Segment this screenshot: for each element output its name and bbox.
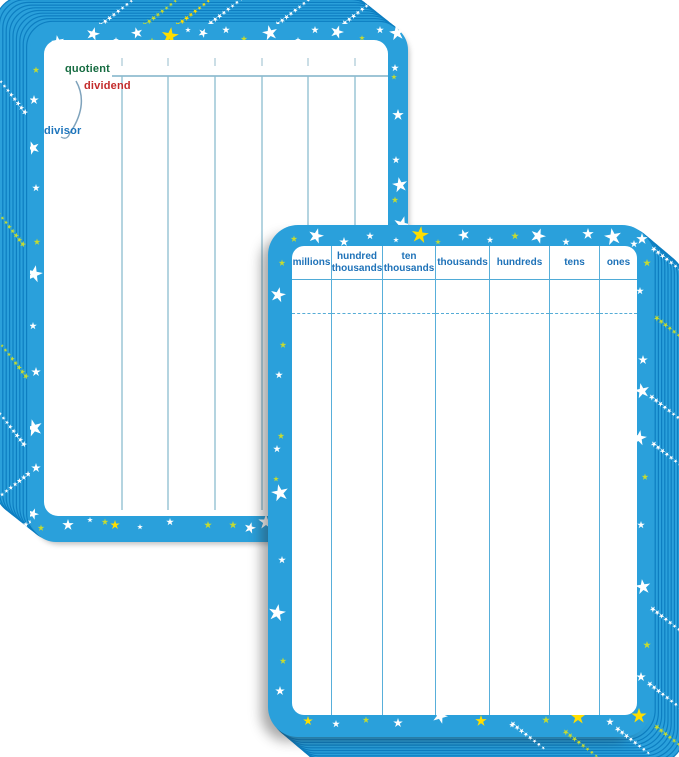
star-trail-icon: [614, 725, 652, 756]
star-trail-icon: [650, 245, 679, 276]
star-trail-icon: [649, 605, 679, 636]
chart-cards-product-image: quotient dividend divisor millionshundre…: [0, 0, 679, 757]
star-trail-icon: [646, 680, 679, 711]
star-trail-icon: [653, 723, 679, 754]
star-trail-icon: [653, 314, 679, 345]
front-card-edge-star-trails: [0, 0, 679, 757]
star-trail-icon: [650, 440, 679, 471]
star-trail-icon: [648, 393, 679, 424]
star-trail-icon: [509, 720, 547, 751]
star-trail-icon: [562, 728, 600, 757]
